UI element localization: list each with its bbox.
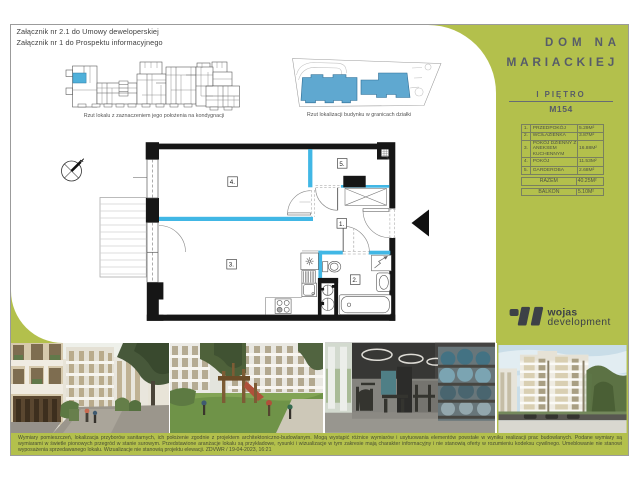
svg-text:5.: 5. [339,161,344,168]
svg-text:2.: 2. [352,277,357,284]
svg-text:4.: 4. [230,179,235,186]
svg-text:1.: 1. [339,221,344,228]
svg-text:3.: 3. [229,262,234,269]
